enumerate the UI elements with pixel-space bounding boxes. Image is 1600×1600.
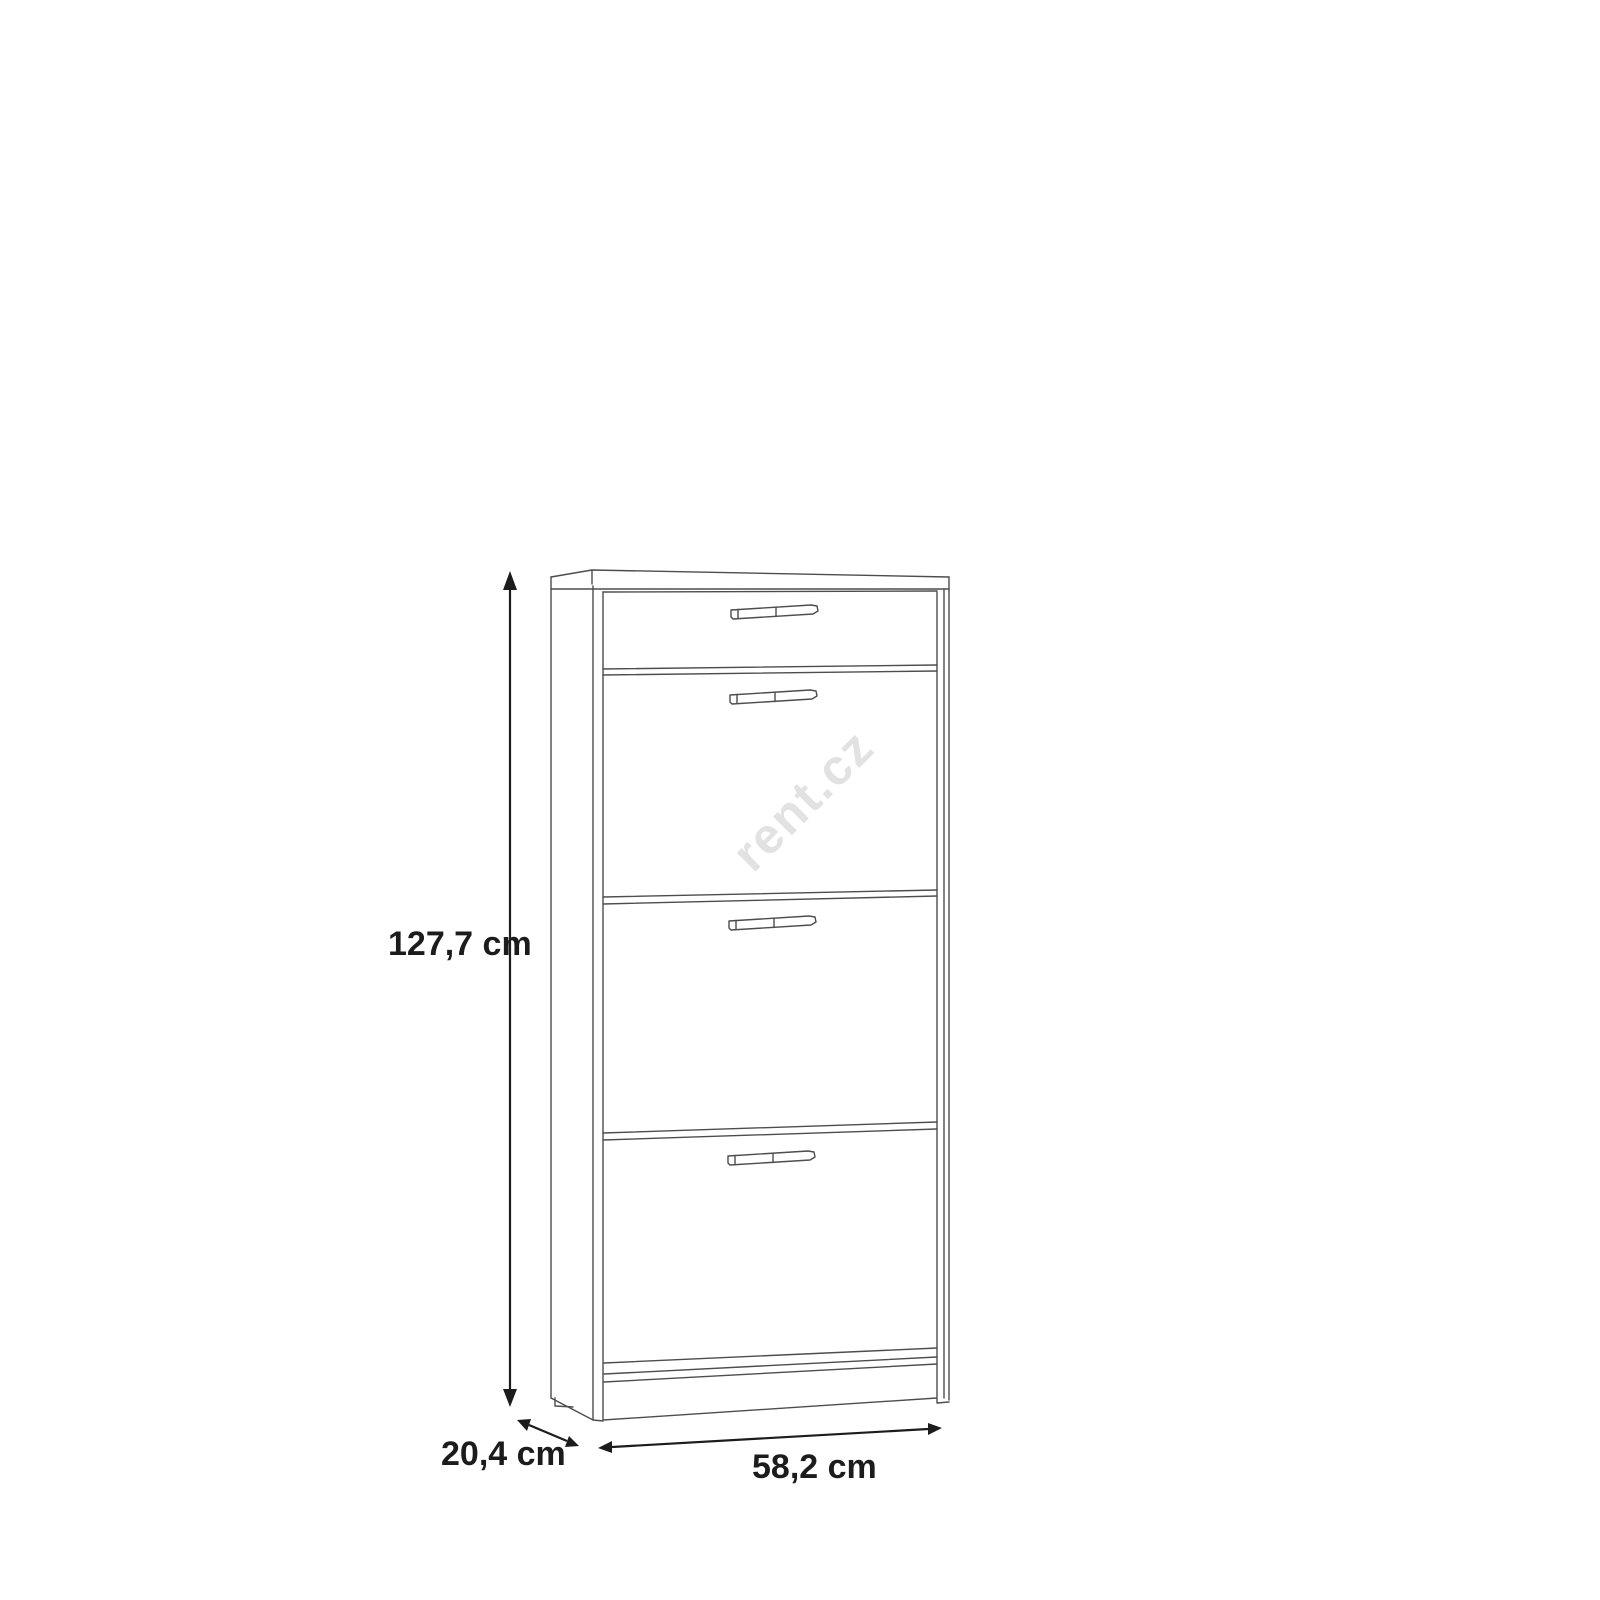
flap-divider-2 bbox=[603, 1122, 937, 1140]
width-dimension-label: 58,2 cm bbox=[752, 1450, 877, 1484]
plinth bbox=[604, 1348, 937, 1382]
height-dimension-label: 127,7 cm bbox=[388, 927, 498, 961]
depth-dimension-label: 20,4 cm bbox=[441, 1437, 566, 1471]
product-dimension-diagram: rent.cz 127,7 cm 20,4 cm 58,2 cm bbox=[0, 0, 1600, 1600]
drawer-divider bbox=[603, 665, 937, 675]
cabinet-carcass bbox=[551, 586, 949, 1421]
flap-1-handle bbox=[730, 690, 817, 704]
flap-divider-1 bbox=[603, 890, 937, 904]
flap-3-handle bbox=[728, 1151, 815, 1165]
flap-2-handle bbox=[729, 916, 816, 930]
cabinet-top-board bbox=[551, 570, 949, 590]
drawer-handle bbox=[731, 605, 818, 619]
right-foot bbox=[937, 1398, 949, 1403]
left-foot bbox=[555, 1398, 573, 1407]
height-dimension-arrow bbox=[503, 571, 517, 1407]
